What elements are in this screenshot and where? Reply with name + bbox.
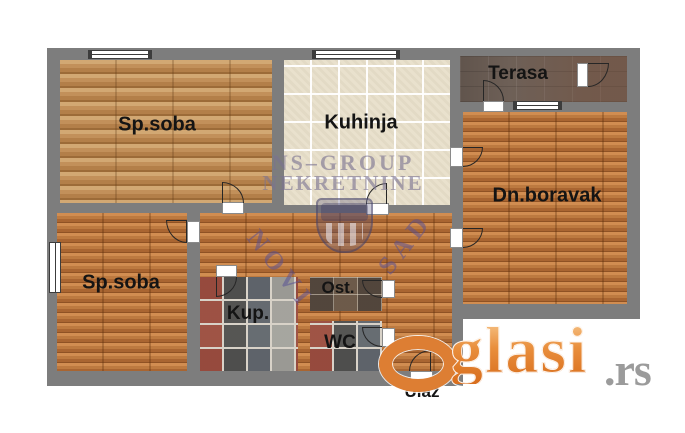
door-gap-terrace (577, 63, 588, 87)
label-terrace: Terasa (488, 63, 548, 85)
window-bedroom-top (88, 50, 152, 59)
room-living-floor (463, 112, 627, 304)
label-toilet: WC (324, 332, 356, 354)
door-gap-balcony (483, 101, 504, 112)
door-gap-storage (382, 280, 395, 298)
door-gap-bedroom-bottom (187, 221, 200, 243)
door-gap-bathroom (216, 265, 237, 277)
window-terrace-wall (513, 101, 562, 110)
floorplan-canvas: Sp.soba Kuhinja Terasa Dn.boravak Sp.sob… (0, 0, 685, 433)
label-bedroom-top: Sp.soba (118, 114, 196, 137)
door-gap-hall-living (450, 228, 463, 248)
door-gap-bedroom-top (222, 202, 244, 214)
watermark-agency-line2: NEKRETNINE (262, 171, 423, 196)
oglasi-o-ring-icon (379, 336, 457, 392)
door-gap-kitchen-living (450, 147, 463, 167)
label-bedroom-bottom: Sp.soba (82, 272, 160, 295)
window-kitchen (312, 50, 400, 59)
watermark-oglasi-tld: .rs (604, 347, 651, 393)
watermark-oglasi-text: glasi (450, 318, 588, 384)
window-bedroom-bottom (49, 242, 61, 293)
label-kitchen: Kuhinja (324, 112, 397, 135)
label-bathroom: Kup. (227, 303, 269, 325)
label-storage: Ost. (321, 278, 354, 298)
label-living-room: Dn.boravak (493, 185, 602, 208)
